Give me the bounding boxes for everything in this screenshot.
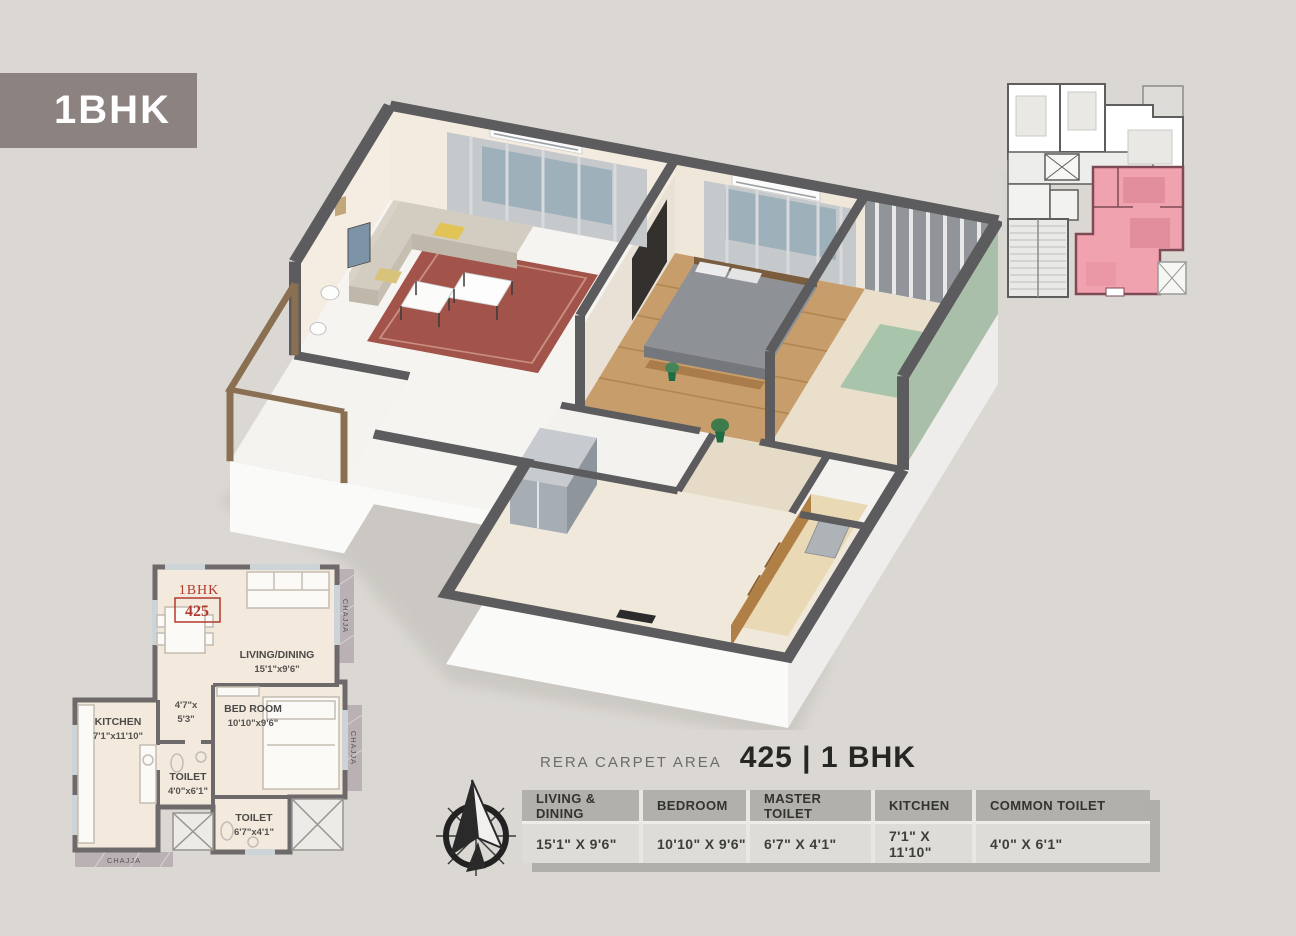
value-living-dining: 15'1" X 9'6" <box>522 821 643 863</box>
table-value-row: 15'1" X 9'6" 10'10" X 9'6" 6'7" X 4'1" 7… <box>522 821 1150 863</box>
living-dims: 15'1"x9'6" <box>254 664 299 675</box>
floor-plan-2d: 1BHK 425 LIVING/DINING 15'1"x9'6" BED RO… <box>55 545 400 880</box>
bedroom-dims: 10'10"x9'6" <box>228 718 279 729</box>
living-label: LIVING/DINING <box>240 649 315 661</box>
bedroom-label: BED ROOM <box>224 703 282 715</box>
kitchen-dims: 7'1"x11'10" <box>93 731 143 742</box>
value-master-toilet: 6'7" X 4'1" <box>750 821 875 863</box>
key-plan <box>998 72 1198 307</box>
wall-art <box>348 223 370 268</box>
toilet-small-label: TOILET <box>169 771 207 783</box>
brochure-page: 1BHK <box>0 0 1296 936</box>
wall-lamp <box>321 286 339 300</box>
dimensions-table: LIVING & DINING BEDROOM MASTER TOILET KI… <box>522 790 1150 863</box>
plan-unit-type: 1BHK <box>179 583 220 598</box>
unit-type-label: 1BHK <box>54 88 171 133</box>
toilet-large-label: TOILET <box>235 812 273 824</box>
keyplan-hatch <box>1158 262 1186 294</box>
plan-unit-number: 425 <box>185 603 209 620</box>
toilet-small-dims: 4'0"x6'1" <box>168 786 208 797</box>
toilet-large-dims: 6'7"x4'1" <box>234 827 274 838</box>
rera-value: 425 | 1 BHK <box>740 741 916 775</box>
table-header-row: LIVING & DINING BEDROOM MASTER TOILET KI… <box>522 790 1150 821</box>
chajja-label-right-1: CHAJJA <box>341 599 350 633</box>
value-kitchen: 7'1" X 11'10" <box>875 821 976 863</box>
header-living-dining: LIVING & DINING <box>522 790 643 821</box>
header-bedroom: BEDROOM <box>643 790 750 821</box>
header-kitchen: KITCHEN <box>875 790 976 821</box>
kitchen-label: KITCHEN <box>95 716 142 728</box>
chajja-label-right-2: CHAJJA <box>349 731 358 765</box>
value-common-toilet: 4'0" X 6'1" <box>976 821 1150 863</box>
stairwell <box>1008 219 1068 297</box>
chajja-label-bottom: CHAJJA <box>107 856 141 865</box>
compass-icon <box>428 778 524 882</box>
rera-carpet-area: RERA CARPET AREA 425 | 1 BHK <box>540 741 916 775</box>
unit-type-badge: 1BHK <box>0 73 197 148</box>
rera-label: RERA CARPET AREA <box>540 754 722 771</box>
passage-dims-1: 4'7"x <box>175 700 198 711</box>
passage-dims-2: 5'3" <box>177 714 194 725</box>
header-common-toilet: COMMON TOILET <box>976 790 1150 821</box>
value-bedroom: 10'10" X 9'6" <box>643 821 750 863</box>
header-master-toilet: MASTER TOILET <box>750 790 875 821</box>
